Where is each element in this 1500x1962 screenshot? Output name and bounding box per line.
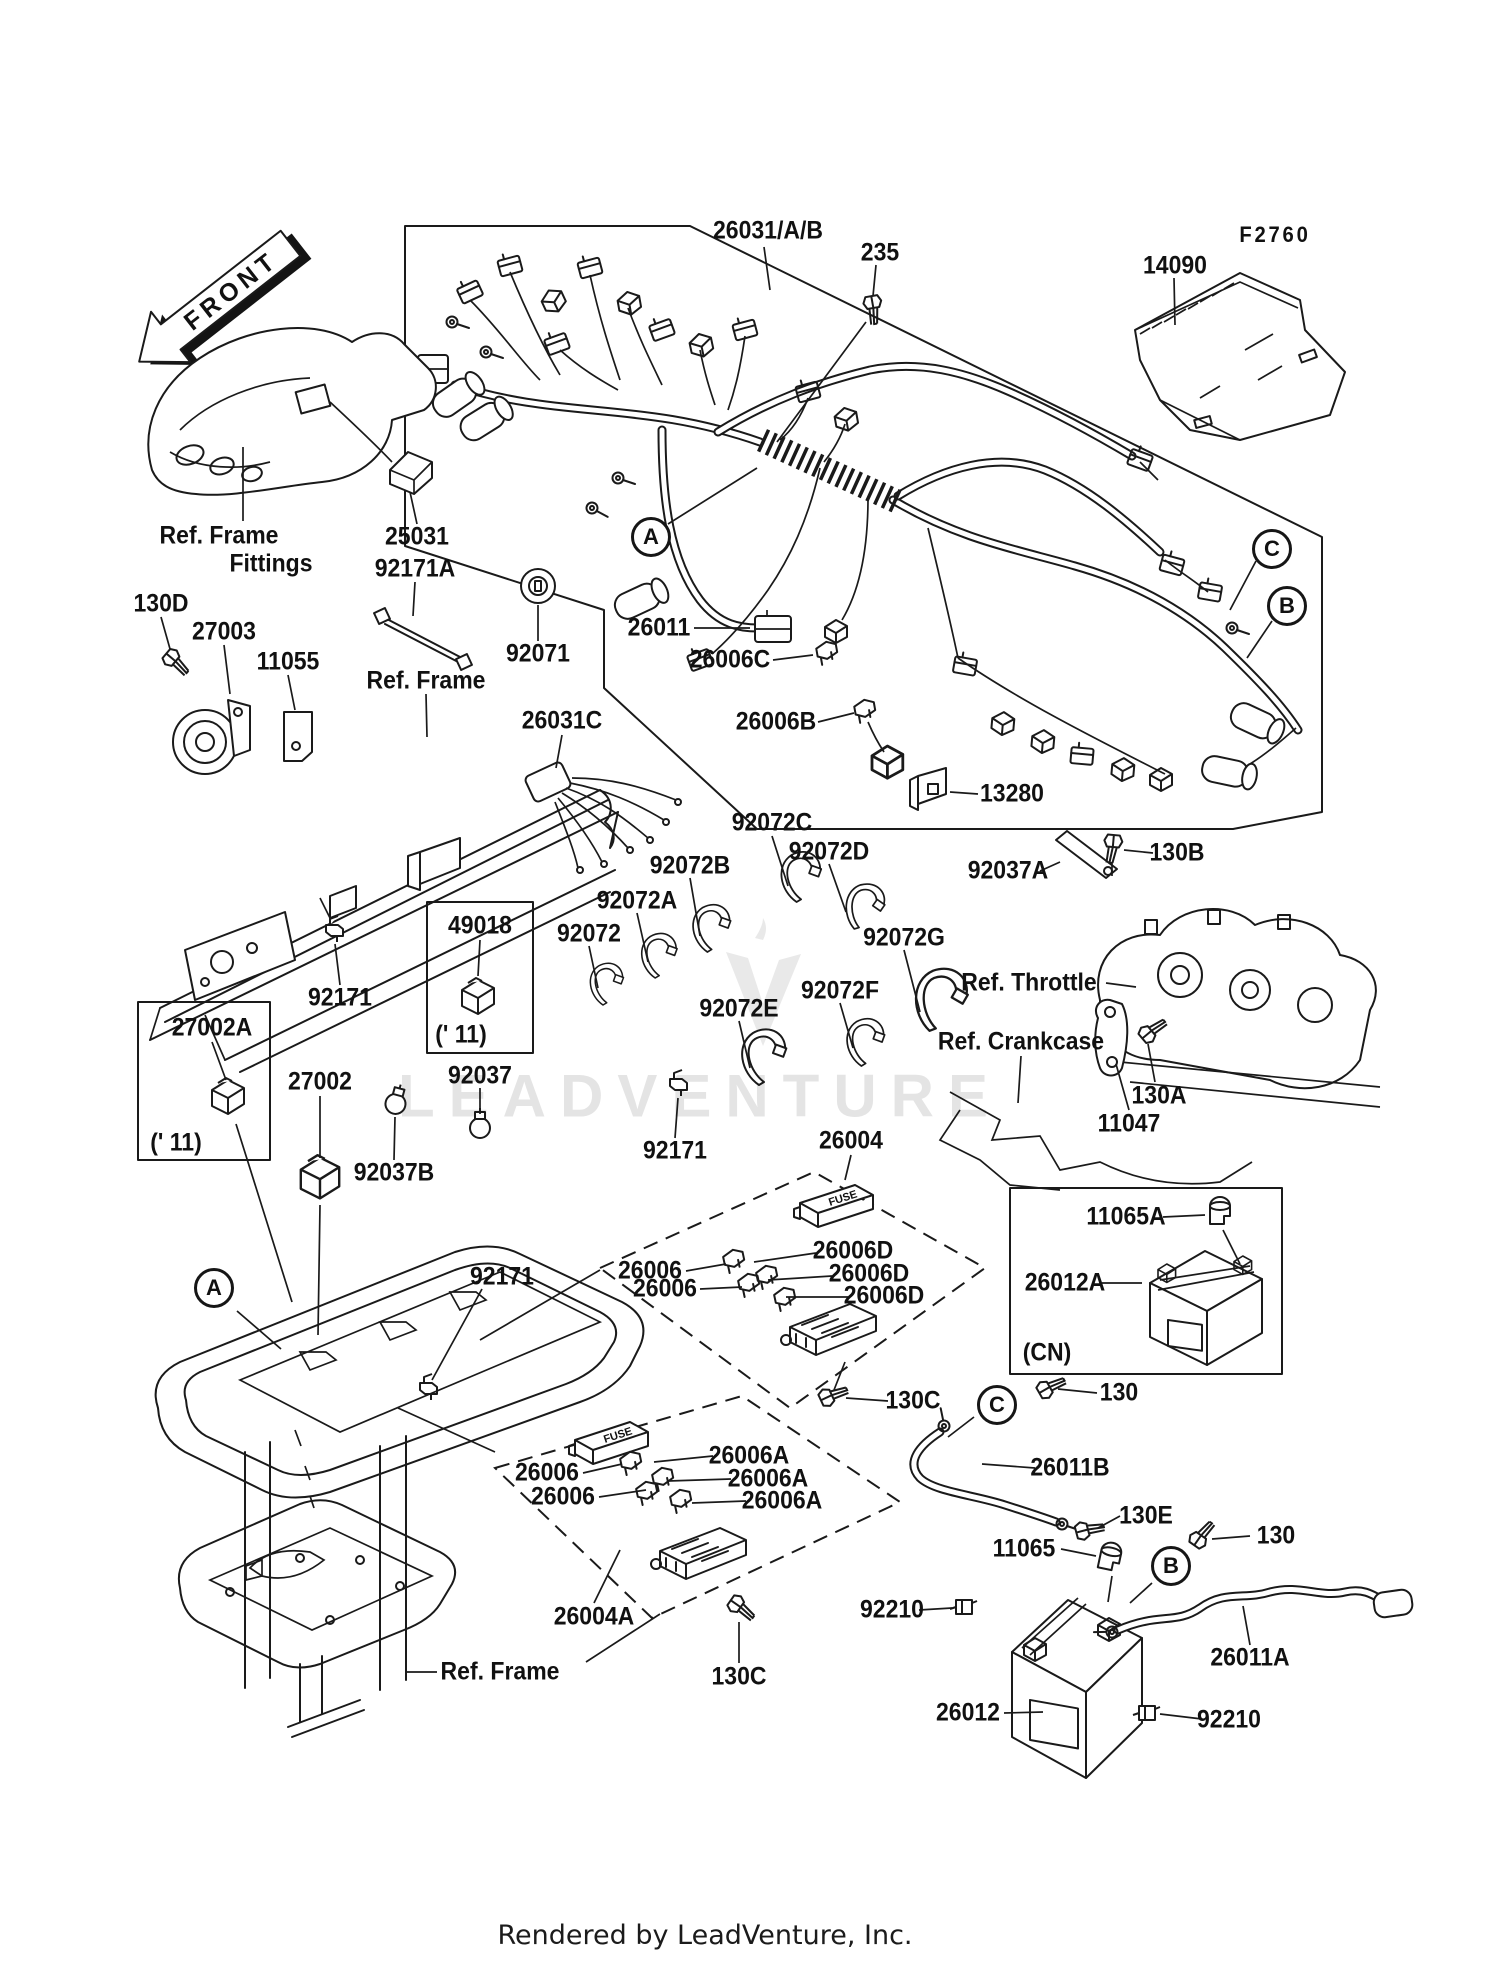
bolt-130D	[161, 647, 194, 679]
bolt-130C-lower	[726, 1593, 759, 1624]
part-label-26011b: 26011B	[1030, 1454, 1109, 1483]
part-label-11065: 11065	[993, 1535, 1056, 1564]
part-label-130e: 130E	[1119, 1502, 1173, 1531]
ecu-25031	[390, 452, 432, 494]
clip-92210-left	[950, 1600, 977, 1614]
callout-circle-c: C	[977, 1385, 1017, 1425]
part-label-26006d: 26006D	[844, 1282, 925, 1311]
part-label-130a: 130A	[1132, 1082, 1187, 1111]
part-label-130: 130	[1257, 1522, 1295, 1551]
harness-corrugated-tube	[762, 440, 898, 502]
bolts	[161, 295, 1218, 1624]
part-label-26006c: 26006C	[690, 646, 771, 675]
fuse-26006C	[815, 640, 839, 665]
part-label-92171: 92171	[470, 1263, 534, 1292]
part-label-26004a: 26004A	[554, 1603, 635, 1632]
part-label-fittings: Fittings	[229, 550, 312, 579]
part-label-92171: 92171	[308, 984, 372, 1013]
callout-circle-b: B	[1151, 1546, 1191, 1586]
part-label-11065a: 11065A	[1086, 1203, 1165, 1232]
rod-92171A	[374, 608, 472, 670]
part-label-26006a: 26006A	[742, 1487, 823, 1516]
callout-circle-a: A	[194, 1268, 234, 1308]
part-label-130c: 130C	[886, 1387, 941, 1416]
part-label-92171a: 92171A	[375, 555, 456, 584]
part-label-235: 235	[861, 239, 899, 268]
part-label-refframe: Ref. Frame	[160, 522, 279, 551]
cap-11065A	[1210, 1197, 1230, 1224]
footer-credit: Rendered by LeadVenture, Inc.	[497, 1920, 912, 1951]
callout-circle-a: A	[631, 517, 671, 557]
horn-27003	[173, 700, 250, 774]
fuse-block-26004A	[651, 1528, 746, 1579]
part-label-14090: 14090	[1143, 252, 1207, 281]
part-label-26012: 26012	[936, 1699, 1000, 1728]
part-label-26011a: 26011A	[1210, 1644, 1289, 1673]
fuse-26006B	[853, 698, 877, 723]
relay-27002	[301, 1155, 339, 1198]
part-label-refframe: Ref. Frame	[441, 1658, 560, 1687]
parts-diagram-page: LEADVENTURE FRONT	[0, 0, 1500, 1962]
part-label-26031c: 26031C	[522, 707, 603, 736]
part-label-27002a: 27002A	[172, 1014, 253, 1043]
bracket-13280	[910, 768, 946, 810]
part-label-26004: 26004	[819, 1127, 883, 1156]
crankcase-drawing	[940, 1092, 1252, 1190]
cap-92071	[521, 569, 555, 603]
cable-end-boot	[1373, 1588, 1414, 1618]
fusebox-26004A-group: FUSE	[398, 1396, 900, 1662]
cover-14090-drawing	[1135, 273, 1345, 440]
part-label-11055: 11055	[257, 648, 320, 677]
part-label-92072e: 92072E	[699, 995, 778, 1024]
part-label-27002: 27002	[288, 1068, 352, 1097]
fuse-block-26004	[781, 1304, 876, 1355]
callout-circle-c: C	[1252, 529, 1292, 569]
part-label-92037: 92037	[448, 1062, 512, 1091]
part-label-92072: 92072	[557, 920, 621, 949]
bolt-130-bottom	[1187, 1517, 1218, 1550]
clip-92171-lower	[420, 1374, 437, 1400]
part-label-26012a: 26012A	[1025, 1269, 1106, 1298]
part-label-130c: 130C	[712, 1663, 767, 1692]
part-label-11: (' 11)	[150, 1129, 202, 1158]
throttle-body-drawing	[1098, 909, 1380, 1107]
part-label-25031: 25031	[385, 523, 449, 552]
relay-49018	[462, 978, 494, 1014]
leadventure-watermark-icon	[726, 918, 801, 1046]
part-label-92072d: 92072D	[789, 838, 870, 867]
part-label-49018: 49018	[448, 912, 512, 941]
part-label-92072a: 92072A	[597, 887, 678, 916]
part-label-92037b: 92037B	[354, 1159, 435, 1188]
part-label-92037a: 92037A	[968, 857, 1049, 886]
relay-27002A	[212, 1078, 244, 1114]
part-label-26006b: 26006B	[736, 708, 817, 737]
part-label-26006: 26006	[633, 1275, 697, 1304]
part-label-92210: 92210	[860, 1596, 924, 1625]
part-label-26011: 26011	[628, 614, 691, 643]
clip-92171-center	[670, 1070, 687, 1096]
part-label-92071: 92071	[506, 640, 570, 669]
part-label-refthrottle: Ref. Throttle	[961, 969, 1096, 998]
part-label-92072g: 92072G	[863, 924, 945, 953]
part-label-13280: 13280	[980, 780, 1044, 809]
part-label-refcrankcase: Ref. Crankcase	[938, 1028, 1104, 1057]
part-label-130: 130	[1100, 1379, 1138, 1408]
clamp-92037B	[383, 1082, 410, 1116]
part-label-refframe: Ref. Frame	[367, 667, 486, 696]
part-label-f2760: F2760	[1239, 222, 1310, 248]
bracket-11055	[284, 712, 312, 761]
part-label-130d: 130D	[134, 590, 189, 619]
part-label-92210: 92210	[1197, 1706, 1261, 1735]
cap-11065	[1098, 1541, 1123, 1572]
part-label-27003: 27003	[192, 618, 256, 647]
part-label-92072f: 92072F	[801, 977, 879, 1006]
part-label-26006: 26006	[531, 1483, 595, 1512]
callout-circle-b: B	[1267, 586, 1307, 626]
part-label-cn: (CN)	[1023, 1339, 1072, 1368]
bolt-130E	[1074, 1517, 1106, 1542]
small-electric-parts	[521, 569, 1117, 878]
part-label-92072c: 92072C	[732, 809, 813, 838]
part-label-92171: 92171	[643, 1137, 707, 1166]
part-label-11: (' 11)	[435, 1021, 487, 1050]
part-label-26031ab: 26031/A/B	[713, 217, 823, 246]
part-label-11047: 11047	[1098, 1110, 1161, 1139]
part-label-130b: 130B	[1150, 839, 1205, 868]
part-label-92072b: 92072B	[650, 852, 731, 881]
bolt-130	[1035, 1371, 1068, 1401]
